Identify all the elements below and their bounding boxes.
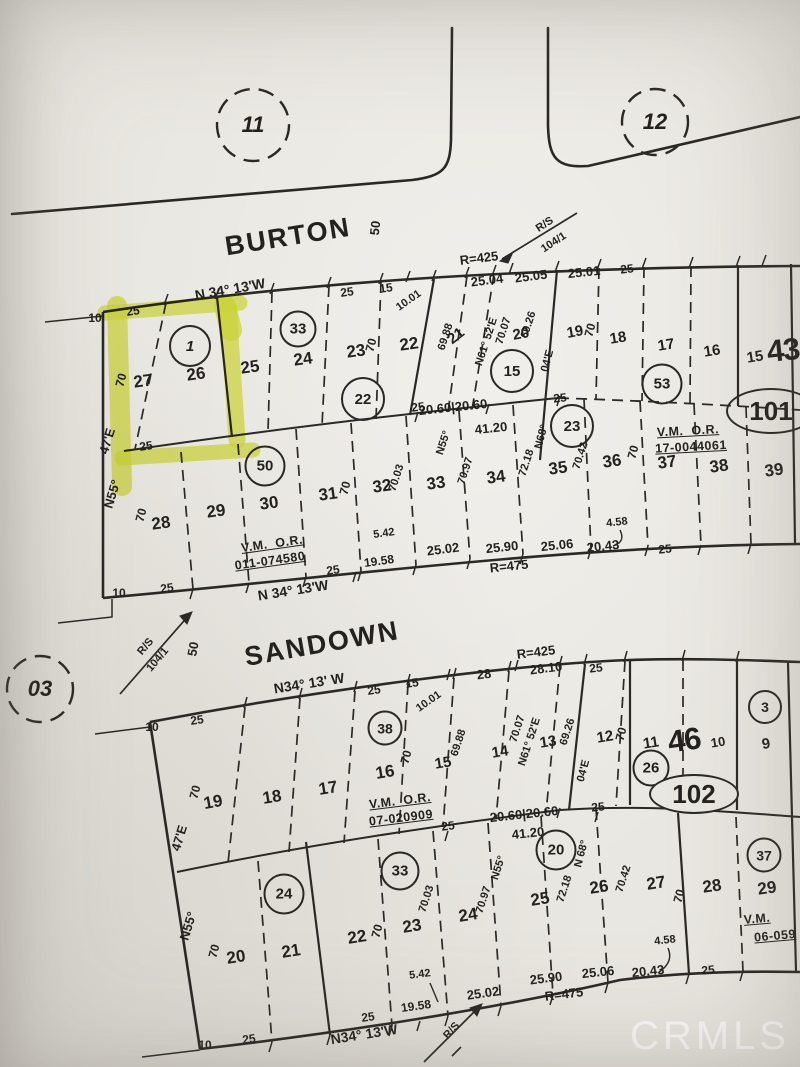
ref-circle-24-label: 24: [276, 886, 293, 903]
lot-depth-70: 70: [363, 337, 378, 353]
lot-number-24: 24: [292, 349, 313, 368]
dim-2506: 25.06: [540, 537, 574, 553]
ref-circle-53: 53: [642, 364, 683, 405]
ref-circle-37: 37: [747, 838, 782, 873]
dim-tick: 25: [589, 661, 604, 674]
dim-tick: 28: [476, 667, 492, 682]
parcel-map-scan: 11 12 03 BURTON 50 R/S 104/1 R=425 N 34°…: [0, 0, 800, 1067]
crmls-watermark: CRMLS: [630, 1014, 790, 1059]
ref-circle-23-label: 23: [564, 418, 581, 435]
lot-number-16: 16: [703, 342, 722, 359]
ref-circle-3: 3: [748, 690, 782, 724]
lot-number-31: 31: [317, 484, 338, 503]
ref-circle-1-label: 1: [186, 338, 194, 355]
dim-tick: 25: [701, 963, 715, 976]
ref-circle-33-label: 33: [290, 321, 307, 338]
dim-tick: 25: [620, 262, 635, 275]
ref-circle-15: 15: [490, 349, 534, 393]
corner-offset: 10: [112, 587, 125, 599]
dim-tick: 25.05: [514, 268, 548, 285]
dim-tick: 25: [553, 391, 568, 404]
ref-circle-23: 23: [550, 404, 594, 448]
lot-number-27: 27: [132, 371, 153, 390]
ref-oval-101-label: 101: [749, 396, 792, 427]
lot-number-15: 15: [434, 754, 453, 771]
dim-4120: 41.20: [474, 420, 508, 436]
ref-circle-22-label: 22: [355, 391, 372, 408]
lot-number-23: 23: [401, 916, 422, 936]
lot-depth-70: 70: [187, 784, 202, 800]
ref-oval-102-label: 102: [672, 779, 715, 810]
sandown-street-width: 50: [185, 641, 200, 658]
lot-number-30: 30: [258, 493, 279, 512]
parcel-number-46: 46: [666, 722, 702, 757]
dim-tick: 25.01: [567, 264, 601, 280]
street-curves: [12, 28, 800, 214]
ref-circle-03-label: 03: [28, 678, 52, 700]
lot-number-17: 17: [657, 336, 676, 353]
radius-mid: R=475: [489, 558, 529, 575]
ref-circle-33b: 33: [381, 852, 420, 891]
lot-number-16: 16: [374, 762, 395, 782]
dim-tick: 25: [126, 304, 141, 318]
lot-number-36: 36: [601, 451, 622, 470]
dim-458: 4.58: [606, 516, 628, 529]
corner-offset: 10: [198, 1039, 211, 1051]
dim-tick: 25: [190, 713, 205, 727]
ref-circle-12-label: 12: [643, 111, 667, 133]
lot-number-27: 27: [645, 873, 666, 893]
burton-street-width: 50: [368, 220, 383, 236]
ref-circle-50-label: 50: [257, 458, 274, 475]
dim-tick: 15: [405, 676, 420, 690]
dim-tick: 25: [361, 1010, 376, 1024]
ref-circle-15-label: 15: [504, 363, 521, 380]
lot-depth-70: 70: [369, 923, 384, 939]
lot-number-19: 19: [202, 792, 224, 812]
lot-depth-70: 70: [113, 372, 128, 388]
ref-circle-3-label: 3: [761, 699, 769, 715]
lot-number-39: 39: [763, 460, 784, 479]
dim-2506: 25.06: [581, 964, 615, 980]
ref-circle-1: 1: [169, 325, 211, 367]
lot-number-13: 13: [539, 733, 558, 750]
ref-circle-24: 24: [264, 874, 305, 915]
lot-number-29: 29: [756, 878, 777, 897]
lot-number-18: 18: [261, 787, 282, 807]
lot-depth-70: 70: [398, 749, 413, 765]
dim-2043: 20.43: [631, 963, 665, 979]
dim-tick: 15: [379, 281, 394, 295]
ref-circle-38: 38: [368, 711, 403, 746]
dim-tick: 25: [658, 542, 672, 555]
lot-number-28: 28: [701, 876, 722, 895]
ref-circle-33: 33: [280, 311, 317, 348]
lot-number-35: 35: [547, 458, 568, 477]
ref-circle-20: 20: [536, 830, 577, 871]
lot-number-34: 34: [485, 467, 506, 486]
lot-depth-70: 70: [613, 726, 628, 742]
lot-number-21: 21: [280, 941, 301, 961]
ref-circle-53-label: 53: [654, 376, 671, 393]
ref-circle-26-label: 26: [643, 760, 660, 777]
dim-tick: 25: [326, 563, 341, 577]
lot-number-37: 37: [656, 452, 677, 471]
lot-number-14: 14: [491, 743, 510, 760]
map-linework: [0, 0, 800, 1067]
ref-circle-38-label: 38: [377, 720, 393, 736]
ref-circle-20-label: 20: [548, 842, 565, 859]
lot-number-22: 22: [346, 927, 367, 947]
parcel-number-43: 43: [765, 333, 800, 367]
dim-2590: 25.90: [485, 539, 519, 555]
dim-tick: 25: [367, 683, 382, 697]
ref-circle-11-label: 11: [242, 114, 265, 136]
block-b-outline: [95, 650, 800, 1057]
lot-depth-70: 70: [671, 888, 686, 904]
lot-number-22: 22: [398, 334, 419, 353]
lot-depth-70: 70: [337, 480, 352, 496]
lot-number-26-highlighted: 26: [185, 364, 206, 383]
lot-number-29: 29: [205, 501, 226, 520]
lot-depth-70: 70: [133, 507, 148, 523]
lot-depth-70: 70: [625, 444, 640, 460]
lot-number-20: 20: [225, 947, 246, 967]
lot-number-26: 26: [588, 877, 609, 897]
lot-number-15: 15: [746, 348, 765, 365]
lot-depth-70: 70: [582, 322, 597, 338]
lot-number-38: 38: [708, 456, 729, 475]
dim-2590: 25.90: [529, 970, 563, 987]
dim-tick: 25: [340, 285, 355, 299]
lot-number-28: 28: [150, 513, 171, 532]
dim-tick: 25: [242, 1032, 257, 1046]
dim-458: 4.58: [654, 934, 676, 947]
ref-circle-22: 22: [341, 377, 385, 421]
dim-tick: 25: [160, 581, 175, 595]
dim-tick: 25.04: [470, 272, 504, 289]
ref-circle-33b-label: 33: [392, 863, 409, 880]
lot-number-12: 12: [596, 728, 615, 745]
dim-tick: 28.10: [529, 660, 563, 677]
lot-number-18: 18: [609, 329, 628, 346]
dim-tick: 25: [591, 800, 606, 813]
lot-number-10: 10: [710, 734, 726, 749]
dim-2043: 20.43: [586, 538, 620, 554]
ref-circle-37-label: 37: [756, 847, 772, 863]
corner-offset: 10: [88, 312, 101, 324]
dim-tick: 25: [441, 819, 456, 833]
dim-tick: 25: [139, 439, 154, 453]
vm-note-b-right: V.M.: [743, 912, 771, 927]
lot-number-25: 25: [239, 357, 260, 376]
corner-offset: 10: [145, 721, 158, 733]
vm-note-a-right: V.M. O.R.: [657, 423, 720, 439]
lot-number-33: 33: [425, 473, 446, 492]
dim-2502: 25.02: [426, 541, 460, 558]
ref-circle-50: 50: [245, 446, 286, 487]
lot-depth-70: 70: [206, 943, 221, 959]
lot-number-25: 25: [529, 889, 550, 909]
lot-number-17: 17: [317, 778, 338, 798]
ref-oval-102: 102: [649, 774, 739, 814]
